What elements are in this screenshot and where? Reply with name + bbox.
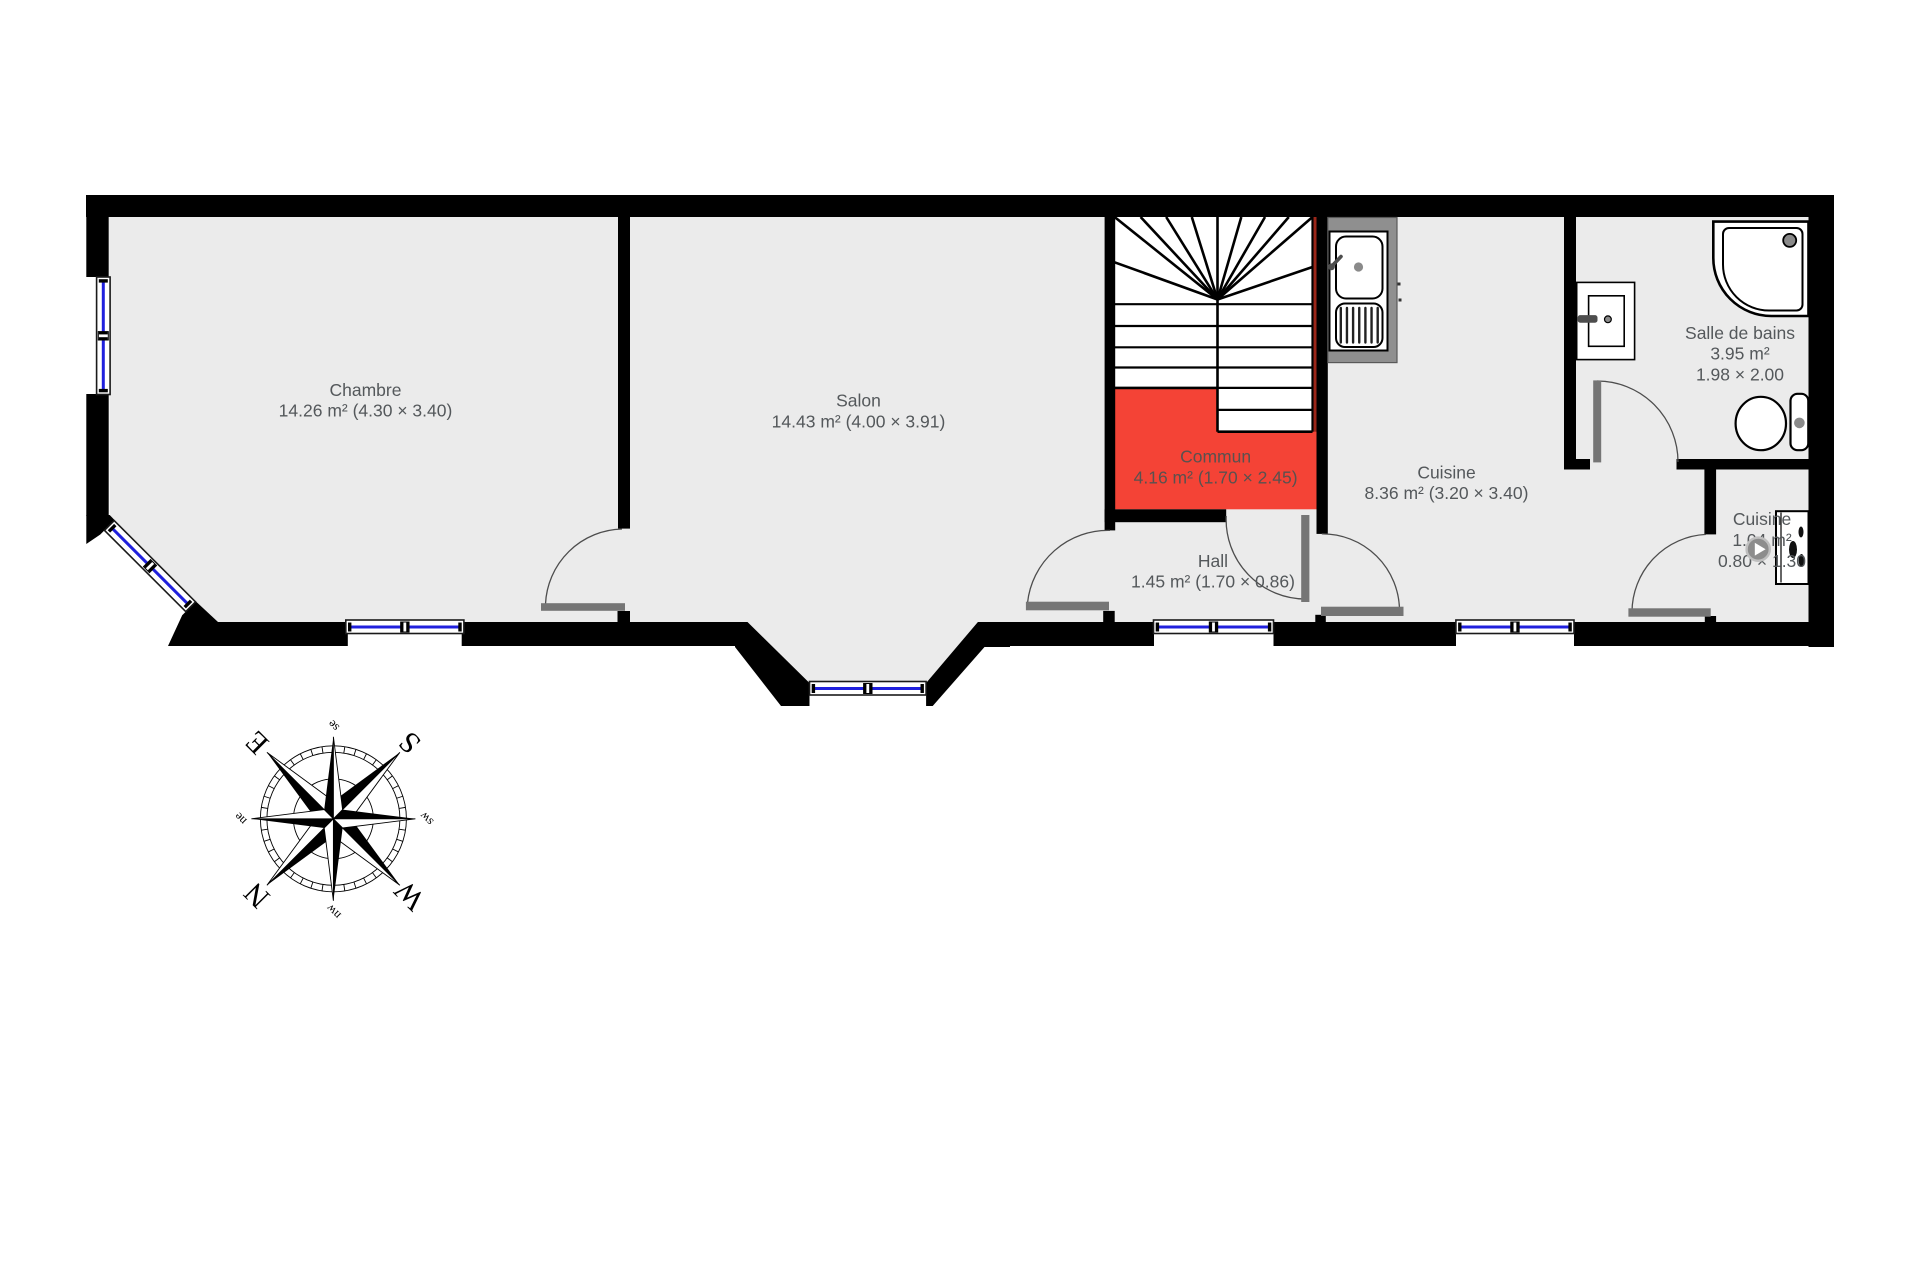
svg-text:14.26 m² (4.30 × 3.40): 14.26 m² (4.30 × 3.40) (279, 400, 453, 420)
svg-text:S: S (392, 725, 427, 760)
svg-text:1.98 × 2.00: 1.98 × 2.00 (1696, 364, 1784, 384)
svg-text:Commun: Commun (1180, 447, 1251, 467)
svg-text:4.16 m² (1.70 × 2.45): 4.16 m² (1.70 × 2.45) (1134, 467, 1298, 487)
svg-text:1.45 m² (1.70 × 0.86): 1.45 m² (1.70 × 0.86) (1131, 572, 1295, 592)
svg-text:Cuisine: Cuisine (1417, 463, 1475, 483)
svg-text:8.36 m² (3.20 × 3.40): 8.36 m² (3.20 × 3.40) (1365, 483, 1529, 503)
svg-text:sw: sw (417, 809, 437, 829)
svg-text:3.95 m²: 3.95 m² (1710, 344, 1769, 364)
svg-text:Salle de bains: Salle de bains (1685, 323, 1795, 343)
svg-text:Salon: Salon (836, 391, 881, 411)
svg-text:14.43 m² (4.00 × 3.91): 14.43 m² (4.00 × 3.91) (772, 411, 946, 431)
svg-text:nw: nw (323, 901, 344, 922)
svg-text:Hall: Hall (1198, 551, 1228, 571)
svg-text:se: se (324, 717, 342, 735)
svg-text:Chambre: Chambre (330, 380, 402, 400)
svg-text:Cuisine: Cuisine (1733, 509, 1791, 529)
svg-text:ne: ne (231, 809, 250, 828)
